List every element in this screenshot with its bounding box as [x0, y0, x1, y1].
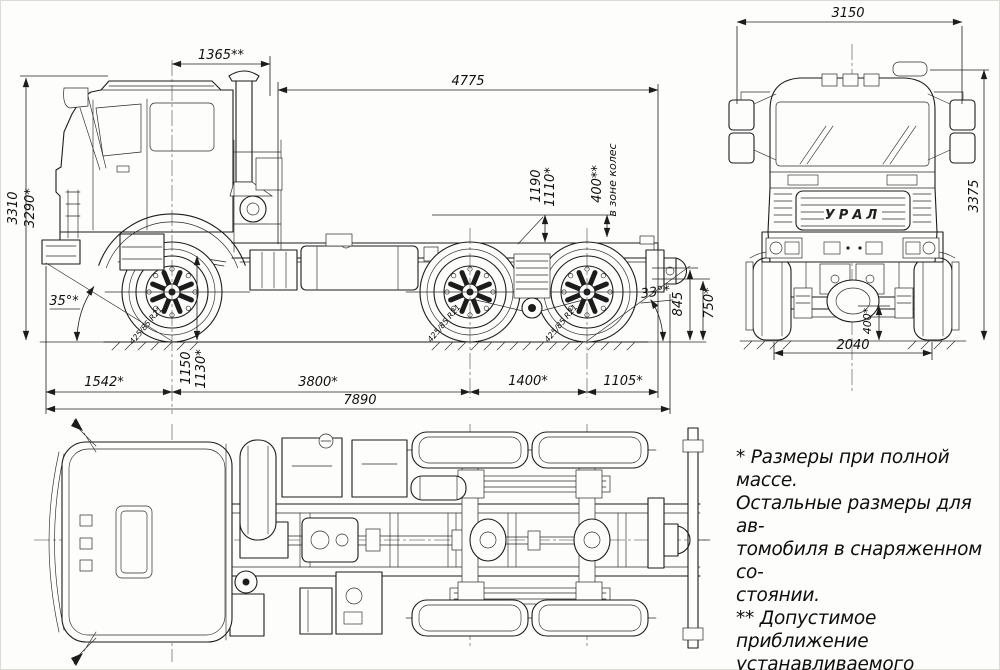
- front-left-tire: [753, 258, 791, 340]
- blueprint-sheet: 1365** 4775 3310 3290* 35°* 425/85 R21 4…: [0, 0, 1000, 670]
- dim-label-3375: 3375: [967, 179, 982, 212]
- note-line: ** Допустимое приближение: [736, 607, 996, 653]
- cab-top: [49, 418, 232, 666]
- toolbox-top: [336, 572, 382, 634]
- dim-label-3150: 3150: [831, 6, 864, 21]
- air-cleaner: [240, 196, 266, 222]
- battery-box-top: [352, 440, 407, 497]
- top-rear-end: [648, 428, 710, 648]
- front-view: УРАЛ: [729, 6, 989, 392]
- air-tank-top: [240, 440, 276, 540]
- roof-hatch-1: [822, 74, 837, 86]
- mirror-left: [729, 92, 776, 163]
- headlight-right: [903, 238, 939, 258]
- dim-label-3290: 3290*: [23, 188, 38, 228]
- note-line: * Размеры при полной массе.: [736, 446, 996, 492]
- dim-label-3800: 3800*: [298, 375, 338, 390]
- note-line: устанавливаемого оборудова-: [736, 653, 996, 670]
- dim-label-2040: 2040: [836, 338, 869, 353]
- cab-front: УРАЛ: [729, 62, 975, 262]
- front-right-tire: [914, 258, 952, 340]
- windshield: [776, 102, 929, 166]
- fuel-tank-top: [282, 438, 342, 497]
- note-line: Остальные размеры для ав-: [736, 492, 996, 538]
- dim-label-4775: 4775: [451, 74, 484, 89]
- grille: УРАЛ: [774, 191, 931, 230]
- note-line: томобиля в снаряженном со-: [736, 538, 996, 584]
- ground-line: [40, 342, 706, 350]
- dim-label-3310: 3310: [6, 191, 21, 224]
- transfer-case: [302, 518, 358, 562]
- dim-label-845: 845: [671, 292, 686, 317]
- dim-label-1130: 1130*: [194, 349, 209, 389]
- dim-label-400-clearance: 400*: [861, 307, 874, 334]
- dim-label-1365: 1365**: [198, 48, 245, 63]
- door-window: [96, 104, 141, 156]
- dim-label-750: 750*: [702, 287, 717, 319]
- battery-box: [250, 250, 297, 290]
- roof-hatch-top: [116, 506, 152, 578]
- note-line: стоянии.: [736, 584, 996, 607]
- dim-label-1542: 1542*: [84, 375, 124, 390]
- cab-side: [42, 81, 245, 270]
- wheel-zone-label: в зоне колес: [606, 143, 619, 216]
- side-window: [150, 103, 214, 151]
- dim-label-400-wheelzone: 400**: [590, 165, 605, 203]
- front-bumper: [42, 240, 80, 264]
- top-view: [34, 418, 710, 666]
- muffler-top: [411, 476, 466, 500]
- dim-label-1400: 1400*: [508, 374, 548, 389]
- diff-axle1-top: [470, 519, 506, 561]
- grille-brand-text: УРАЛ: [825, 208, 881, 223]
- angle-label-33: 33°*: [640, 283, 672, 302]
- side-view: 1365** 4775 3310 3290* 35°* 425/85 R21 4…: [6, 48, 717, 414]
- dim-label-1110: 1110*: [543, 167, 558, 207]
- fuel-tank: [301, 234, 418, 290]
- roof-beacon: [893, 62, 927, 76]
- angle-label-35: 35°*: [49, 294, 79, 309]
- headlight-left: [766, 238, 802, 258]
- diff-axle2-top: [574, 519, 610, 561]
- dim-label-1105: 1105*: [603, 374, 643, 389]
- dim-label-1150: 1150: [179, 351, 194, 384]
- footnotes: * Размеры при полной массе. Остальные ра…: [736, 446, 996, 670]
- dim-label-1190: 1190: [529, 169, 544, 202]
- exhaust-stack: [229, 71, 272, 222]
- cab-steps: [120, 234, 164, 270]
- roof-hatch-3: [864, 74, 879, 86]
- dim-label-7890: 7890: [343, 393, 376, 408]
- front-axle: [790, 262, 917, 322]
- roof-hatch-2: [843, 74, 858, 86]
